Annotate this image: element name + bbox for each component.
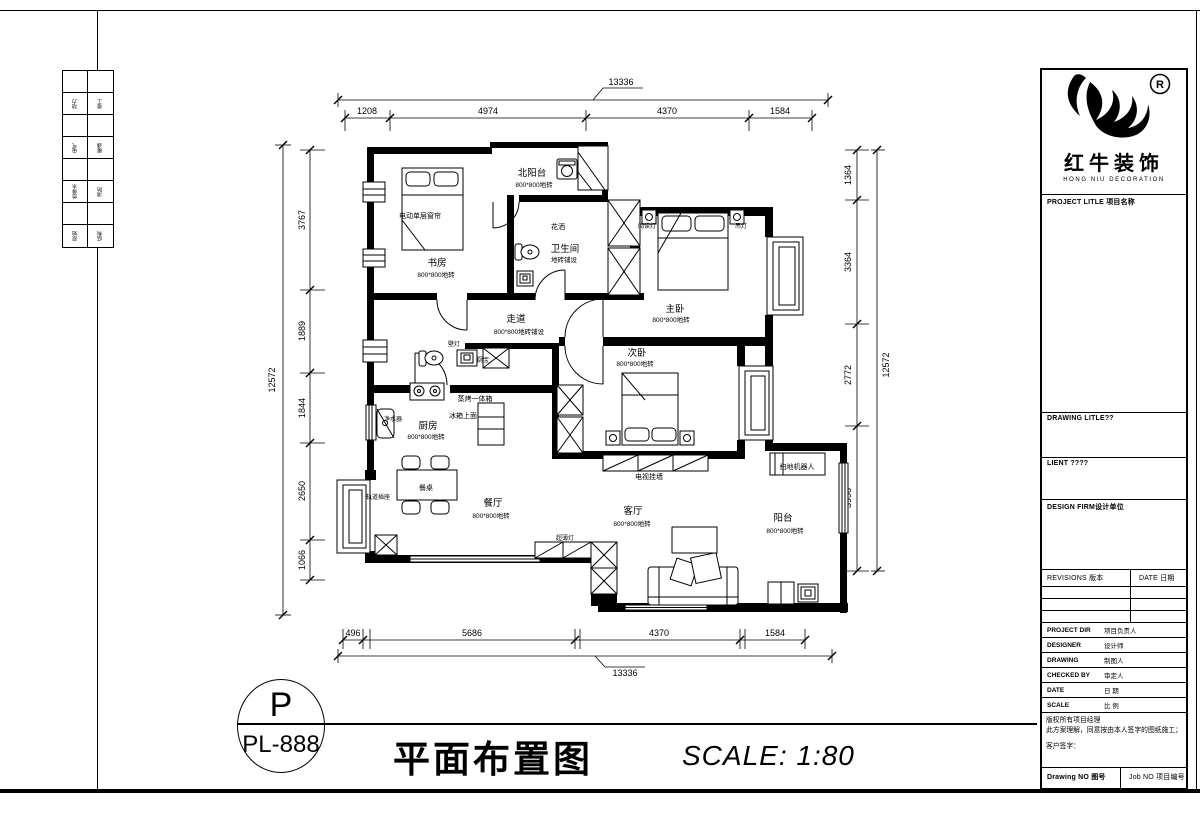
dim-left-total: 12572 xyxy=(267,367,277,392)
tb-project-title-label: PROJECT LITLE 项目名称 xyxy=(1042,195,1186,207)
tb-copyright: 版权所有项目经理 此方案理解，同意按由本人签字的图纸施工； 客户签字： xyxy=(1042,712,1186,767)
index-row xyxy=(63,159,113,181)
floor-drain xyxy=(517,271,533,286)
room-study: 书房 xyxy=(427,257,446,269)
dim-left-seg: 1844 xyxy=(297,398,307,418)
ann-steam-oven: 蒸烤一体箱 xyxy=(458,394,493,403)
dim-right-seg: 2772 xyxy=(843,365,853,385)
index-row: 原始 结构 xyxy=(63,225,113,247)
sheet-right-border xyxy=(1196,10,1197,790)
ann-water-purifier: 净水器 xyxy=(384,415,402,423)
dim-top-seg: 1584 xyxy=(770,106,790,116)
tb-row-project-dir: PROJECT DIR项目负责人 xyxy=(1042,622,1186,637)
tb-row-scale: SCALE比 例 xyxy=(1042,697,1186,712)
room-master-note: 800*800地转 xyxy=(652,315,690,324)
room-dining: 餐厅 xyxy=(483,497,503,509)
tb-revisions-label: REVISIONS 版本 xyxy=(1042,571,1103,583)
dim-top-total: 13336 xyxy=(608,77,633,87)
tb-drawing-no-label: Drawing NO 图号 xyxy=(1042,770,1106,782)
dim-top-seg: 4370 xyxy=(657,106,677,116)
tb-drawing-title-label: DRAWING LITLE?? xyxy=(1042,413,1186,422)
balcony-cabinet xyxy=(768,582,818,604)
index-tab: 竣工 xyxy=(98,99,103,109)
room-second-note: 800*800地转 xyxy=(616,359,654,368)
index-row xyxy=(63,71,113,93)
ann-robot-vacuum: 扫地机器人 xyxy=(780,462,815,471)
tb-row-designer: DESIGNER设计师 xyxy=(1042,637,1186,652)
dim-right-seg: 3364 xyxy=(843,252,853,272)
room-bathroom-note: 地砖铺设 xyxy=(551,255,578,264)
index-row: 给排水 消防 xyxy=(63,181,113,203)
ann-slim-light: 超薄灯 xyxy=(556,534,574,542)
dim-bottom-seg: 1584 xyxy=(765,628,785,638)
title-block: R 红牛装饰 HONG NIU DECORATION PROJECT LITLE… xyxy=(1040,68,1188,790)
dim-right-seg: 1364 xyxy=(843,165,853,185)
drawing-circle-number: PL-888 xyxy=(233,731,329,759)
ann-tv-wall: 电视挂墙 xyxy=(635,472,663,481)
index-row: 动力 竣工 xyxy=(63,93,113,115)
drawing-title: 平面布置图 xyxy=(393,729,593,783)
room-second: 次卧 xyxy=(627,347,647,359)
master-bed xyxy=(642,210,744,290)
room-dining-note: 800*800地转 xyxy=(472,511,510,520)
room-north-balcony-note: 800*800地转 xyxy=(515,180,553,189)
tb-row-checked-by: CHECKED BY审定人 xyxy=(1042,667,1186,682)
index-row xyxy=(63,115,113,137)
index-tab: 给排水 xyxy=(73,184,78,199)
room-north-balcony: 北阳台 xyxy=(518,167,547,179)
registered-mark: R xyxy=(1156,79,1164,91)
room-living: 客厅 xyxy=(623,505,643,517)
index-tab: 结构 xyxy=(98,231,103,241)
sink xyxy=(377,409,394,438)
dim-bottom-seg: 5686 xyxy=(462,628,482,638)
tb-client-cell: LIENT ???? xyxy=(1042,457,1186,499)
room-balcony: 阳台 xyxy=(773,512,792,524)
tb-row-drawing: DRAWING制图人 xyxy=(1042,652,1186,667)
tb-date-col-label: DATE 日期 xyxy=(1134,571,1175,583)
footer-divider-line xyxy=(237,723,1037,725)
ann-dining-table: 餐桌 xyxy=(419,483,433,492)
stove xyxy=(410,383,444,400)
tb-project-title-cell: PROJECT LITLE 项目名称 xyxy=(1042,194,1186,412)
index-tab: 暖通 xyxy=(98,143,103,153)
company-name-en: HONG NIU DECORATION xyxy=(1042,177,1186,183)
dim-right-total: 12572 xyxy=(881,352,891,377)
tb-design-firm-label: DESIGN FIRM设计单位 xyxy=(1042,500,1186,512)
sofa xyxy=(648,553,738,605)
ann-fridge-top: 冰箱上面 xyxy=(449,411,477,420)
tb-drawing-title-cell: DRAWING LITLE?? xyxy=(1042,412,1186,457)
ann-curtain: 电动单层窗帘 xyxy=(399,211,441,220)
toilet-hall xyxy=(419,351,443,366)
drawing-scale: SCALE: 1:80 xyxy=(682,740,855,772)
kitchen-heater-fixture xyxy=(457,350,477,366)
room-bathroom: 卫生间 xyxy=(551,243,580,255)
ann-kitchen-heater: 厨宝 xyxy=(477,356,489,364)
tb-client-label: LIENT ???? xyxy=(1042,458,1186,467)
company-logo: R 红牛装饰 HONG NIU DECORATION xyxy=(1042,70,1186,194)
drawing-sheet: 动力 竣工 电气 暖通 给排水 消防 原始 结构 xyxy=(0,0,1200,824)
dim-left-seg: 1889 xyxy=(297,321,307,341)
room-kitchen-note: 800*800地转 xyxy=(407,432,445,441)
room-hall: 走道 xyxy=(506,313,526,325)
toilet-bathroom xyxy=(515,244,539,260)
second-bed xyxy=(606,373,694,445)
fridge xyxy=(478,403,504,445)
coffee-table xyxy=(672,527,717,553)
dim-bottom-seg: 4370 xyxy=(649,628,669,638)
ann-pendant-light: 吊灯 xyxy=(735,222,747,230)
bull-logo-icon: R xyxy=(1044,70,1184,144)
dim-bottom-seg: 496 xyxy=(345,628,360,638)
sheet-bottom-border xyxy=(0,789,1200,793)
room-hall-note: 800*800地砖铺设 xyxy=(494,327,545,336)
index-row xyxy=(63,203,113,225)
ann-sh shower: 花洒 xyxy=(551,222,565,231)
index-tab: 消防 xyxy=(98,187,103,197)
sheet-top-border xyxy=(0,10,1200,11)
index-tab: 动力 xyxy=(73,99,78,109)
room-living-note: 800*800地转 xyxy=(613,519,651,528)
floor-plan-svg: 13336 1208 4974 4370 1584 496 5686 4370 … xyxy=(235,55,915,680)
dim-top-seg: 1208 xyxy=(357,106,377,116)
dim-left-seg: 1066 xyxy=(297,550,307,570)
index-tab: 电气 xyxy=(73,143,78,153)
dim-left-seg: 3767 xyxy=(297,210,307,230)
company-name-cn: 红牛装饰 xyxy=(1042,147,1186,176)
drawing-index-strip: 动力 竣工 电气 暖通 给排水 消防 原始 结构 xyxy=(62,70,114,248)
tb-job-no-label: Job NO 项目编号 xyxy=(1124,770,1185,782)
dim-top-seg: 4974 xyxy=(478,106,498,116)
ann-wall-light: 壁灯 xyxy=(448,340,460,348)
room-kitchen: 厨房 xyxy=(418,420,437,432)
ann-reading-light: 阅读灯 xyxy=(638,222,656,230)
tb-number-row: Drawing NO 图号 Job NO 项目编号 xyxy=(1042,767,1186,790)
index-tab: 原始 xyxy=(73,231,78,241)
room-master: 主卧 xyxy=(665,303,685,315)
tb-row-date: DATE日 期 xyxy=(1042,682,1186,697)
ann-track-socket: 轨道插座 xyxy=(366,493,390,501)
study-bed xyxy=(402,168,463,250)
room-balcony-note: 800*800地转 xyxy=(766,526,804,535)
tb-revisions-header: REVISIONS 版本 DATE 日期 xyxy=(1042,569,1186,586)
dim-left-seg: 2650 xyxy=(297,481,307,501)
drawing-circle-letter: P xyxy=(237,686,325,725)
index-row: 电气 暖通 xyxy=(63,137,113,159)
room-study-note: 800*800地转 xyxy=(417,270,455,279)
tb-design-firm-cell: DESIGN FIRM设计单位 xyxy=(1042,499,1186,569)
dim-bottom-total: 13336 xyxy=(612,668,637,678)
washing-machine xyxy=(557,159,577,179)
